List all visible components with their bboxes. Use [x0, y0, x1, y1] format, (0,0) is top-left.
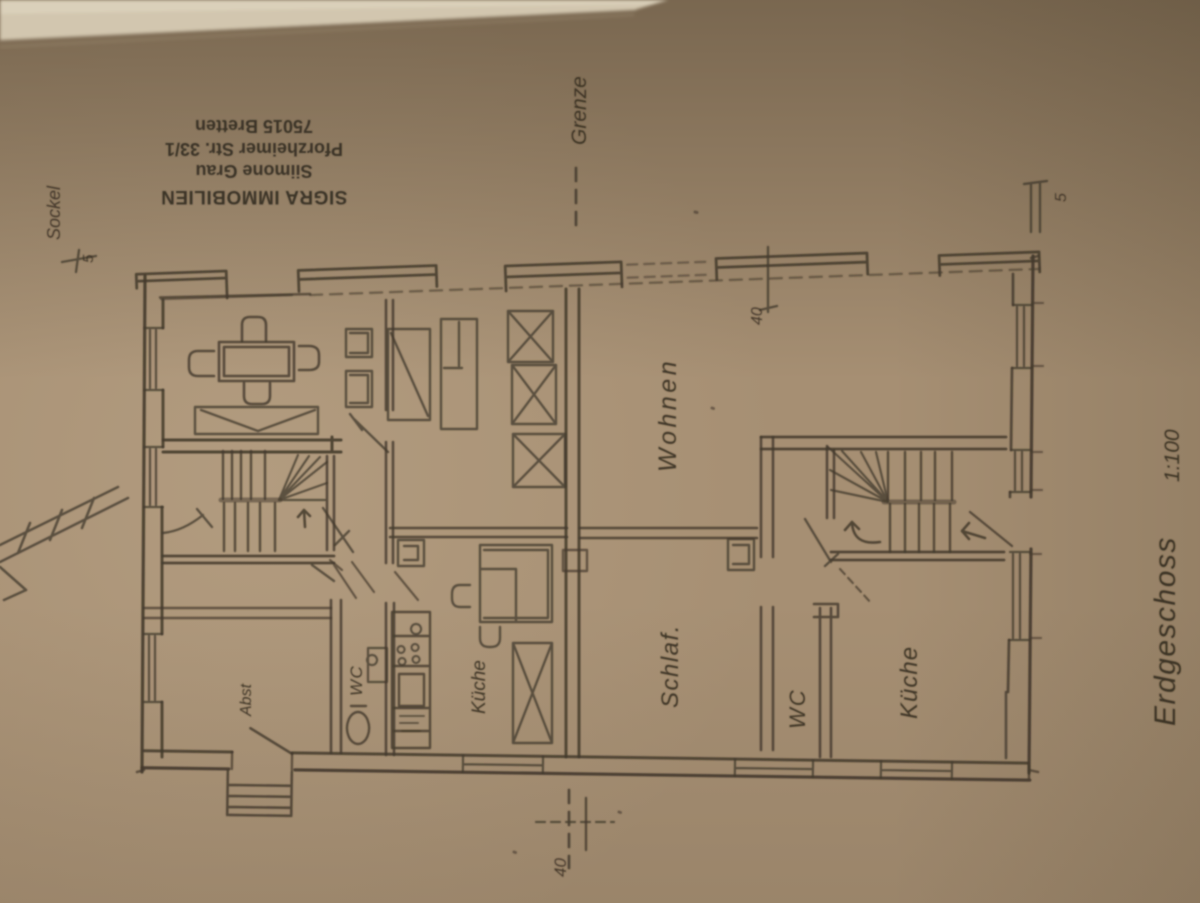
- svg-text:Sockel: Sockel: [44, 185, 64, 240]
- svg-text:WC: WC: [347, 665, 366, 696]
- svg-text:Erdgeschoss: Erdgeschoss: [1149, 536, 1182, 726]
- svg-text:Pforzheimer Str. 33/1: Pforzheimer Str. 33/1: [165, 139, 343, 159]
- svg-text:40: 40: [749, 307, 766, 325]
- svg-text:40: 40: [551, 858, 570, 877]
- svg-text:Küche: Küche: [896, 646, 923, 719]
- svg-text:Grenze: Grenze: [568, 76, 591, 145]
- svg-text:WC: WC: [785, 688, 810, 729]
- svg-text:5: 5: [1053, 193, 1070, 202]
- svg-text:Wohnen: Wohnen: [654, 358, 682, 472]
- svg-text:1:100: 1:100: [1161, 429, 1184, 482]
- svg-text:Siimone Grau: Siimone Grau: [195, 161, 312, 181]
- svg-text:75015 Bretten: 75015 Bretten: [195, 116, 313, 136]
- svg-text:Schlaf.: Schlaf.: [657, 624, 684, 708]
- svg-text:SIGRA IMMOBILIEN: SIGRA IMMOBILIEN: [161, 186, 348, 207]
- svg-text:5: 5: [80, 254, 97, 263]
- svg-text:Abst: Abst: [238, 683, 255, 717]
- svg-text:Küche: Küche: [469, 660, 490, 714]
